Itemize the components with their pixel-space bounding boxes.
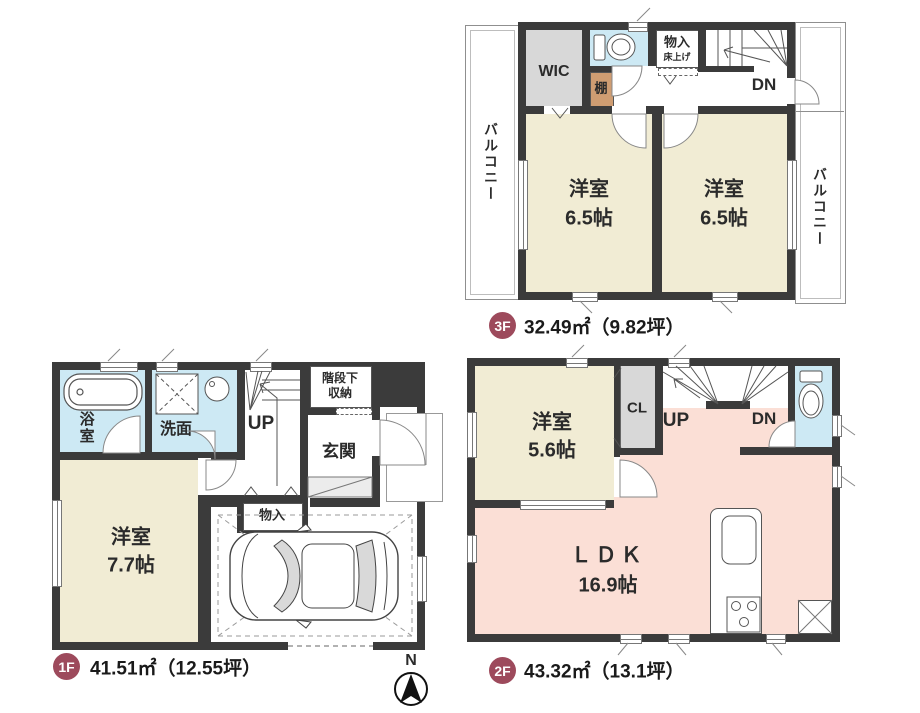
ldk-area <box>614 455 832 508</box>
storage-3f-sub-label: 床上げ <box>663 52 690 62</box>
wall <box>788 366 795 447</box>
garage-opening <box>288 642 373 650</box>
balcony-right <box>795 22 846 304</box>
garage-window <box>417 556 427 602</box>
floor-plan-page: バルコニー バルコニー WIC 棚 物入 <box>0 0 920 713</box>
toilet-room-2f <box>795 366 832 447</box>
wall <box>198 507 211 642</box>
bedroom-left-door-gap <box>612 106 646 114</box>
stair-landing-2f <box>706 401 750 409</box>
ldk-name: ＬＤＫ <box>571 544 646 568</box>
wall <box>60 452 245 460</box>
balcony-right-inner <box>800 27 841 299</box>
bedroom-left-3f <box>526 114 652 292</box>
balcony-right-label: バルコニー <box>812 167 828 247</box>
bathroom <box>60 370 145 452</box>
window <box>156 362 178 372</box>
dn-label-3f: DN <box>752 75 777 95</box>
balcony-left-label: バルコニー <box>483 122 499 202</box>
ldk-area <box>475 508 832 634</box>
wall <box>614 448 663 455</box>
up-label-1f: UP <box>248 413 274 435</box>
balcony-door-gap <box>787 78 795 104</box>
washroom-label: 洗面 <box>160 421 192 439</box>
window <box>787 160 797 250</box>
washroom <box>152 370 237 452</box>
bedroom-1f-name: 洋室 <box>111 527 151 550</box>
compass-icon <box>395 673 427 705</box>
wall <box>145 370 152 452</box>
window <box>712 292 738 302</box>
bedroom-door-gap <box>198 458 211 495</box>
bedroom-2f-door-gap <box>614 457 620 497</box>
floor3-area-text: 32.49㎡（9.82坪） <box>524 313 685 340</box>
window <box>467 412 477 458</box>
stair-landing-3f <box>704 66 754 72</box>
window <box>668 358 690 368</box>
entrance-door-gap <box>372 420 380 456</box>
floor3-badge: 3F <box>489 312 516 339</box>
wic-label: WIC <box>538 63 569 81</box>
bedroom-right-size: 6.5帖 <box>700 208 748 231</box>
bedroom-right-name: 洋室 <box>704 179 744 202</box>
bedroom-1f-size: 7.7帖 <box>107 555 155 578</box>
bedroom-left-name: 洋室 <box>569 179 609 202</box>
dn-label-2f: DN <box>752 409 777 429</box>
bedroom-left-size: 6.5帖 <box>565 208 613 231</box>
floor1-area-text: 41.51㎡（12.55坪） <box>90 654 261 681</box>
bedroom-right-door-gap <box>664 106 698 114</box>
window <box>572 292 598 302</box>
north-label: N <box>405 652 417 670</box>
wall <box>614 366 620 457</box>
entrance-porch <box>386 413 443 502</box>
storage-3f-sill <box>658 68 698 76</box>
understair-sill <box>336 408 372 415</box>
bedroom-1f <box>60 460 198 642</box>
window <box>467 535 477 563</box>
storage-3f-label: 物入 <box>664 36 690 51</box>
floor2-badge: 2F <box>489 657 516 684</box>
balcony-right-divider <box>795 111 844 112</box>
storage-1f-label: 物入 <box>259 509 285 524</box>
wall <box>648 30 656 66</box>
bedroom-sliding-door <box>520 500 606 510</box>
toilet-room-3f <box>590 30 648 66</box>
window <box>52 500 62 587</box>
wall <box>372 407 380 420</box>
bathroom-label: 浴室 <box>77 411 94 445</box>
window <box>566 358 588 368</box>
wall <box>300 362 308 507</box>
window <box>518 160 528 250</box>
window <box>100 362 138 372</box>
bedroom-2f-name: 洋室 <box>532 412 572 435</box>
wall <box>590 66 612 72</box>
window <box>766 634 786 644</box>
floor1-badge: 1F <box>53 653 80 680</box>
wall <box>740 447 832 455</box>
bedroom-right-3f <box>662 114 787 292</box>
kitchen-counter <box>710 508 762 634</box>
wall <box>652 114 662 292</box>
window <box>628 22 648 32</box>
window <box>832 466 842 488</box>
window <box>832 415 842 437</box>
window <box>250 362 272 372</box>
shelf-label: 棚 <box>594 82 607 97</box>
wall <box>310 498 377 507</box>
up-label-2f: UP <box>663 410 689 432</box>
wic-door-gap <box>544 106 570 114</box>
understair-label-2: 収納 <box>328 387 352 401</box>
window <box>668 634 690 644</box>
window <box>620 634 642 644</box>
closet-label: CL <box>627 399 647 416</box>
ldk-size: 16.9帖 <box>579 575 638 598</box>
understair-label-1: 階段下 <box>322 372 358 386</box>
ldk-area <box>663 447 740 455</box>
wall <box>237 370 245 460</box>
entrance-label: 玄関 <box>322 442 356 462</box>
refrigerator-space <box>798 600 832 634</box>
wall <box>655 366 663 448</box>
wall <box>582 30 590 106</box>
floor2-area-text: 43.32㎡（13.1坪） <box>524 657 685 684</box>
bedroom-2f-size: 5.6帖 <box>528 440 576 463</box>
